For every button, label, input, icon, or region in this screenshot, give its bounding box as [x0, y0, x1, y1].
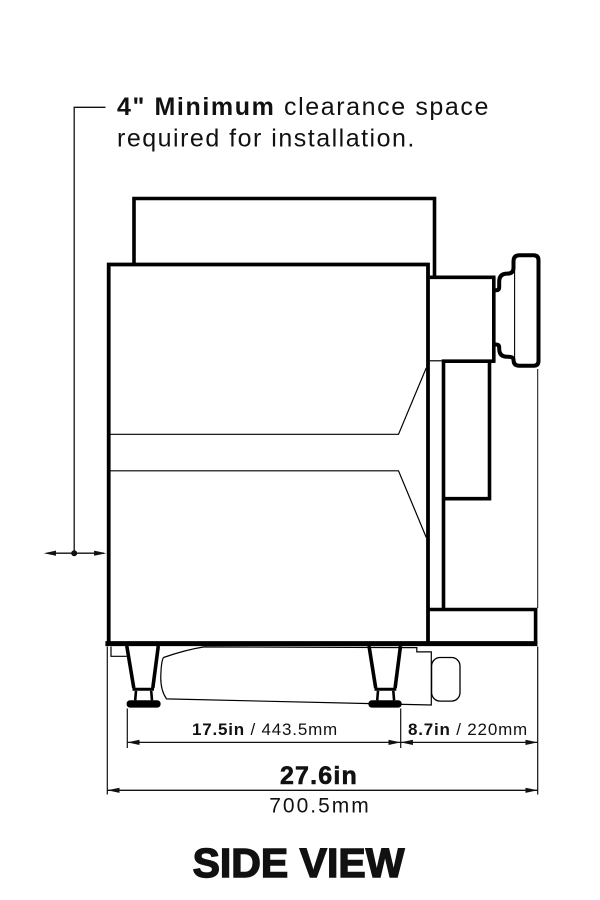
svg-text:27.6in: 27.6in: [280, 762, 358, 790]
svg-text:8.7in / 220mm: 8.7in / 220mm: [408, 720, 528, 739]
svg-text:SIDE VIEW: SIDE VIEW: [193, 840, 405, 886]
svg-text:17.5in / 443.5mm: 17.5in / 443.5mm: [192, 720, 338, 739]
svg-text:required for installation.: required for installation.: [117, 125, 416, 153]
svg-text:4" Minimum clearance space: 4" Minimum clearance space: [117, 93, 490, 121]
svg-text:700.5mm: 700.5mm: [269, 795, 371, 818]
